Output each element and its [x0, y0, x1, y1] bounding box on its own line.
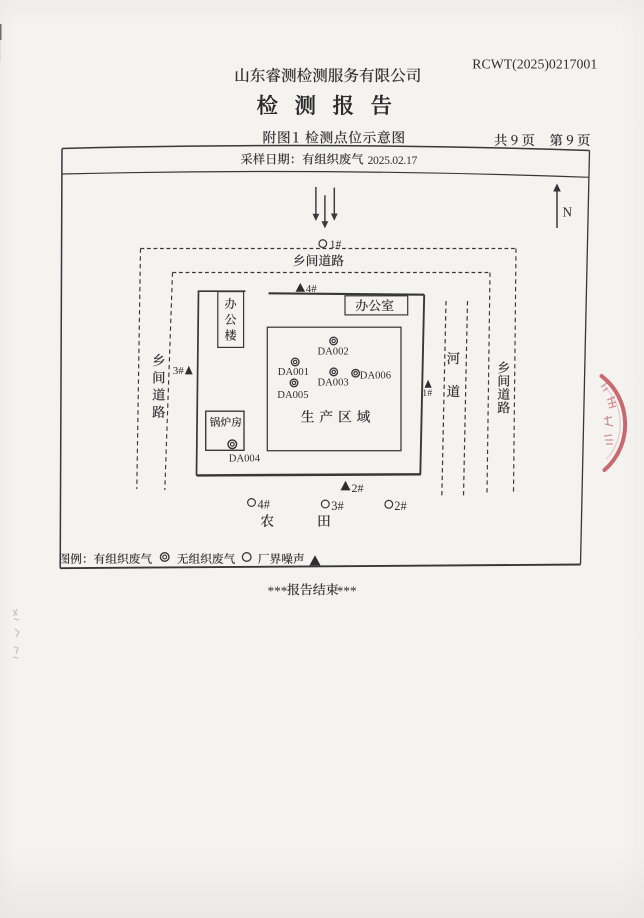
- svg-text:DA001: DA001: [278, 367, 309, 378]
- svg-text:2025.02.17: 2025.02.17: [368, 154, 418, 167]
- svg-text:DA003: DA003: [318, 377, 349, 388]
- svg-text:DA002: DA002: [318, 347, 349, 358]
- svg-text:DA004: DA004: [229, 453, 261, 464]
- svg-text:3#: 3#: [173, 365, 185, 377]
- svg-text:4#: 4#: [306, 283, 318, 295]
- svg-text:***: ***: [268, 584, 288, 599]
- svg-text:N: N: [563, 205, 573, 220]
- svg-text:3#: 3#: [331, 499, 343, 513]
- svg-text:DA006: DA006: [360, 370, 391, 381]
- svg-text:RCWT(2025)0217001: RCWT(2025)0217001: [472, 57, 597, 73]
- svg-text:1#: 1#: [422, 388, 432, 399]
- svg-text:2#: 2#: [394, 499, 406, 513]
- svg-text:4#: 4#: [258, 498, 270, 512]
- svg-text:***: ***: [337, 584, 357, 599]
- svg-text:DA005: DA005: [277, 390, 308, 401]
- svg-text:2#: 2#: [352, 481, 364, 495]
